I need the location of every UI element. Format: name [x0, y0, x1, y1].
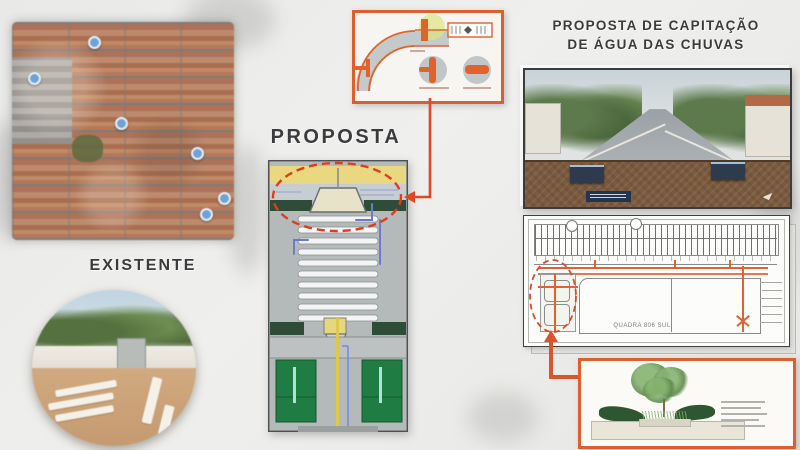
notes-line — [760, 282, 782, 283]
swale-depression — [639, 419, 691, 427]
underground-reservoir-right — [711, 162, 745, 180]
corner-detail-drawing — [355, 13, 495, 95]
inlet-box — [324, 318, 346, 334]
map-marker-icon — [115, 117, 128, 130]
street-corner-detail-callout — [352, 10, 504, 104]
pipe-stub — [674, 260, 676, 268]
legend-line — [721, 413, 767, 415]
legend-line — [721, 401, 765, 403]
site-plan-drawing — [268, 160, 408, 432]
pipe-branch — [538, 286, 578, 288]
soil-cutaway — [525, 160, 790, 209]
tree-canopy — [643, 377, 677, 403]
map-marker-icon — [218, 192, 231, 205]
map-marker-icon — [191, 147, 204, 160]
map-marker-icon — [88, 36, 101, 49]
pipe-stub — [729, 260, 731, 268]
title-line-2: DE ÁGUA DAS CHUVAS — [520, 35, 792, 54]
house-left — [525, 103, 561, 154]
notes-line — [762, 290, 782, 291]
road-edge-line — [534, 264, 777, 265]
pipe-riser — [554, 274, 556, 332]
gate — [117, 338, 145, 370]
stall-divider-line — [534, 238, 777, 239]
house-right — [745, 97, 792, 157]
aerial-neighborhood-photo — [12, 22, 234, 240]
stall-numbers-row — [536, 255, 774, 261]
roof-right — [745, 95, 790, 106]
street-render-image — [523, 68, 792, 209]
map-marker-icon — [28, 72, 41, 85]
notes-line — [760, 314, 782, 315]
swale-line-left — [293, 367, 296, 403]
existing-street-photo — [32, 290, 196, 446]
proposal-site-plan — [268, 160, 408, 432]
map-marker-icon — [200, 208, 213, 221]
block-outline: QUADRA 806 SUL — [579, 278, 761, 334]
roundel — [630, 218, 642, 230]
proposal-label: PROPOSTA — [260, 126, 412, 149]
legend-line — [721, 425, 765, 427]
pipe-main — [538, 267, 768, 269]
notes-line — [762, 306, 782, 307]
title-line-1: PROPOSTA DE CAPITAÇÃO — [520, 16, 792, 35]
legend-line — [721, 419, 759, 421]
legend-line — [721, 407, 761, 409]
raised-crossing-trapezoid — [310, 188, 366, 212]
white-wall — [32, 346, 196, 369]
render-caption-plate — [586, 191, 631, 202]
presentation-slide: EXISTENTE PROPOSTA — [0, 0, 800, 450]
swale-line-right — [379, 367, 382, 403]
background-smudge — [468, 392, 538, 442]
connector-top-detail — [414, 98, 430, 197]
block-technical-plan: QUADRA 806 SUL — [523, 215, 790, 347]
slide-title: PROPOSTA DE CAPITAÇÃO DE ÁGUA DAS CHUVAS — [520, 16, 792, 54]
block-label: QUADRA 806 SUL — [580, 323, 704, 329]
pipe-stub — [594, 260, 596, 268]
detention-cell — [544, 304, 570, 326]
detention-cell — [544, 280, 570, 302]
block-divider — [671, 278, 672, 332]
hedge-strip-left — [270, 200, 312, 211]
road-centerline — [336, 318, 339, 428]
existing-label: EXISTENTE — [58, 257, 228, 275]
photo-mottle — [12, 22, 234, 240]
rain-garden-detail-callout — [578, 358, 796, 449]
hedge-strip-right — [364, 200, 406, 211]
roundel — [566, 220, 578, 232]
underground-reservoir-left — [570, 165, 604, 183]
notes-line — [760, 322, 782, 323]
notes-line — [760, 298, 782, 299]
